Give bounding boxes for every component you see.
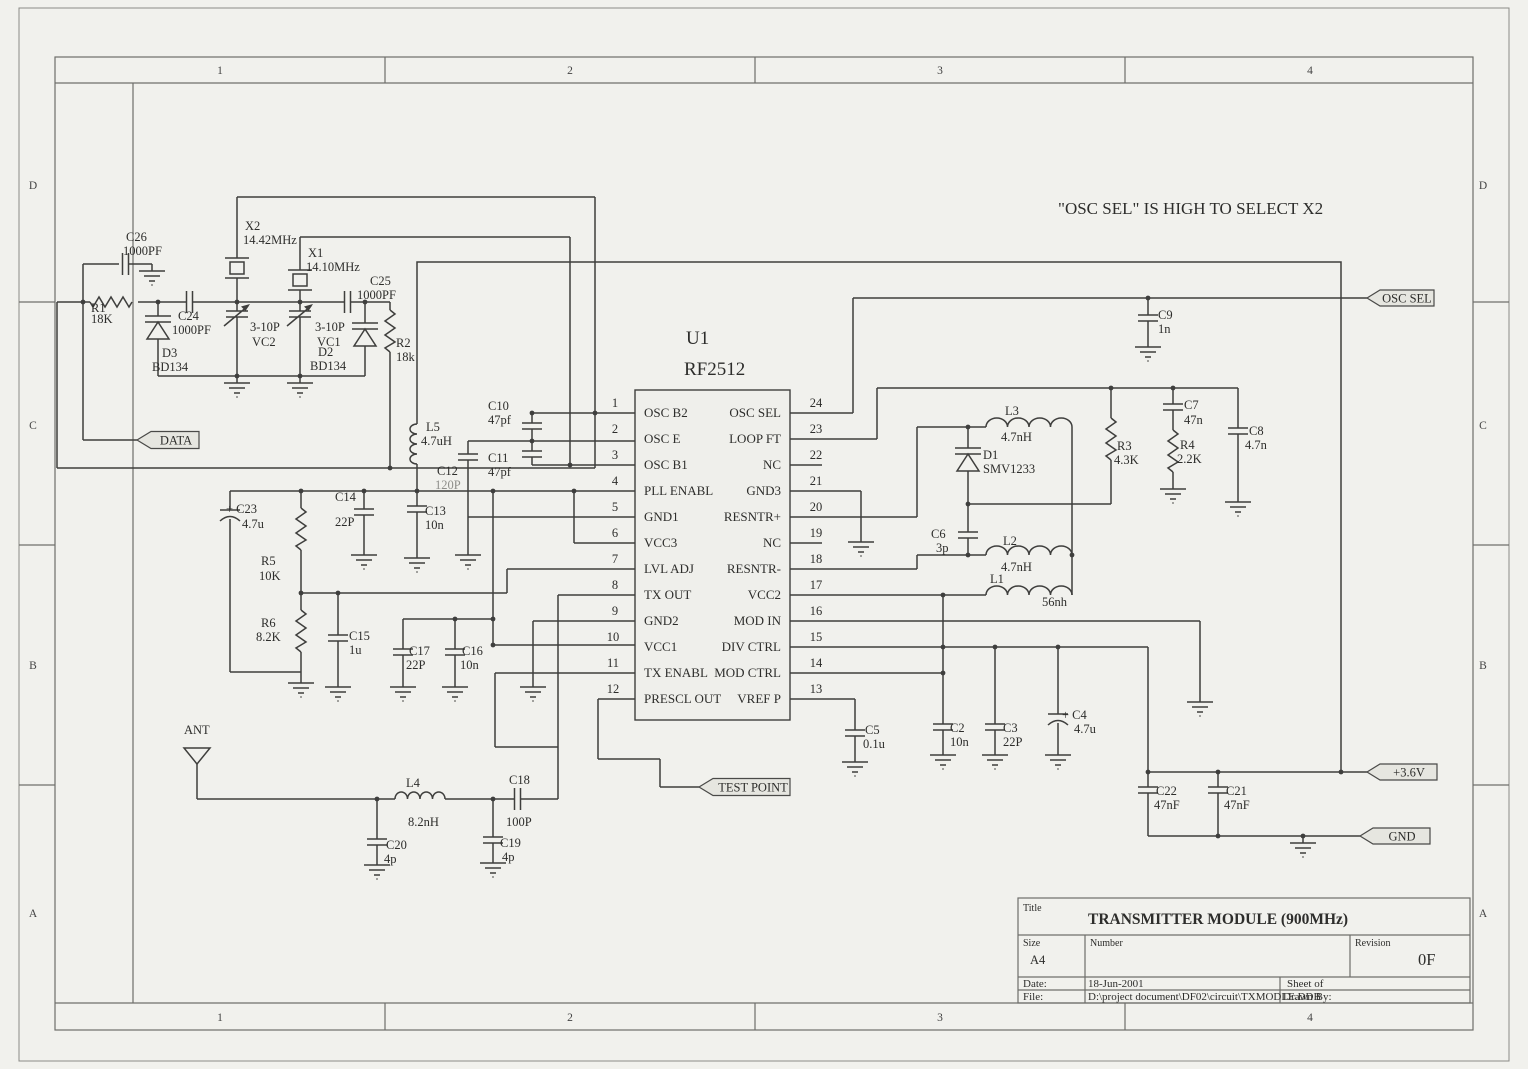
pin-name: GND2	[644, 613, 679, 628]
pin-name: RESNTR-	[727, 561, 781, 576]
pin-number: 1	[612, 396, 618, 410]
label-c20-val: 4p	[384, 852, 397, 866]
v36-flag-label: +3.6V	[1393, 766, 1425, 780]
capacitor-c25	[345, 291, 351, 313]
label-r4-val: 2.2K	[1177, 452, 1202, 466]
capacitor-c7	[1163, 404, 1183, 410]
capacitor-c13	[407, 506, 427, 512]
ground-rail	[1290, 836, 1316, 857]
label-c9-ref: C9	[1158, 308, 1173, 322]
label-d2-ref: D2	[318, 345, 333, 359]
label-c6-ref: C6	[931, 527, 946, 541]
pin-name: TX ENABL	[644, 665, 708, 680]
zone-row-a-left: A	[29, 908, 38, 920]
ground-c5	[842, 755, 868, 776]
pin-name: GND1	[644, 509, 679, 524]
label-c25-ref: C25	[370, 274, 391, 288]
label-l5-ref: L5	[426, 420, 440, 434]
capacitor-c5	[845, 730, 865, 736]
pin-number: 22	[810, 448, 823, 462]
label-c15-ref: C15	[349, 629, 370, 643]
label-c2-val: 10n	[950, 735, 970, 749]
label-c23-val: 4.7u	[242, 517, 265, 531]
ic-part: RF2512	[684, 359, 745, 380]
label-r6-val: 8.2K	[256, 630, 281, 644]
inductor-l2	[986, 546, 1072, 555]
zone-col-1-bottom: 1	[217, 1012, 223, 1024]
pin-name: NC	[763, 457, 781, 472]
label-d1-val: SMV1233	[983, 462, 1035, 476]
label-c5-val: 0.1u	[863, 737, 886, 751]
label-c10-val: 47pf	[488, 413, 512, 427]
pin-name: PRESCL OUT	[644, 691, 721, 706]
ground-c9	[1135, 340, 1161, 361]
capacitor-c15	[328, 635, 348, 641]
pin-number: 10	[607, 630, 620, 644]
label-c22-ref: C22	[1156, 784, 1177, 798]
size-label: Size	[1023, 938, 1041, 949]
pin-name: RESNTR+	[724, 509, 781, 524]
file-label: File:	[1023, 991, 1043, 1003]
revision-label: Revision	[1355, 938, 1391, 949]
zone-row-a-right: A	[1479, 908, 1488, 920]
pin-name: DIV CTRL	[722, 639, 781, 654]
inductor-l4	[395, 792, 445, 799]
label-c4-val: 4.7u	[1074, 722, 1097, 736]
label-l1-ref: L1	[990, 572, 1004, 586]
label-c16-val: 10n	[460, 658, 480, 672]
pin-number: 21	[810, 474, 823, 488]
label-l3-val: 4.7nH	[1001, 430, 1032, 444]
ground-r6	[288, 676, 314, 697]
ground-gnd3	[848, 535, 874, 556]
label-r5-val: 10K	[259, 569, 281, 583]
pin-name: OSC B1	[644, 457, 688, 472]
label-c21-val: 47nF	[1224, 798, 1250, 812]
varactor-d3	[145, 316, 171, 339]
ground-vc2	[224, 376, 250, 397]
label-c2-ref: C2	[950, 721, 965, 735]
capacitor-c18	[515, 788, 521, 810]
zone-col-2-bottom: 2	[567, 1012, 573, 1024]
pin-number: 6	[612, 526, 618, 540]
label-vc2-ref: VC2	[252, 335, 276, 349]
title-label: Title	[1023, 903, 1042, 914]
label-c12-ref: C12	[437, 464, 458, 478]
ground-gnd2	[520, 680, 546, 701]
schematic-canvas: 1 2 3 4 1 2 3 4 D C B A D C B A	[0, 0, 1528, 1069]
label-x2-val: 14.42MHz	[243, 233, 297, 247]
label-d1-ref: D1	[983, 448, 998, 462]
label-l4-val: 8.2nH	[408, 815, 439, 829]
zone-row-b-right: B	[1479, 660, 1487, 672]
zone-col-3-bottom: 3	[937, 1012, 943, 1024]
label-c23-ref: + C23	[226, 502, 257, 516]
label-c7-val: 47n	[1184, 413, 1204, 427]
label-c9-val: 1n	[1158, 322, 1171, 336]
label-r3-val: 4.3K	[1114, 453, 1139, 467]
label-c3-val: 22P	[1003, 735, 1023, 749]
pin-number: 3	[612, 448, 618, 462]
ground-r4	[1160, 482, 1186, 503]
label-c21-ref: C21	[1226, 784, 1247, 798]
pin-name: TX OUT	[644, 587, 691, 602]
label-c24-ref: C24	[178, 309, 200, 323]
capacitor-c11	[522, 451, 542, 457]
zone-row-d-right: D	[1479, 180, 1487, 192]
label-l3-ref: L3	[1005, 404, 1019, 418]
pin-name: LOOP FT	[729, 431, 781, 446]
label-c3-ref: C3	[1003, 721, 1018, 735]
ground-c13	[404, 551, 430, 572]
pin-name: OSC SEL	[729, 405, 781, 420]
label-c19-ref: C19	[500, 836, 521, 850]
label-c13-val: 10n	[425, 518, 445, 532]
label-l1-val: 56nh	[1042, 595, 1068, 609]
pin-number: 16	[810, 604, 823, 618]
resistor-r2	[385, 310, 395, 352]
pin-name: LVL ADJ	[644, 561, 694, 576]
label-c11-val: 47pf	[488, 465, 512, 479]
inductor-l1	[986, 586, 1072, 595]
capacitor-c10	[522, 423, 542, 429]
ic-u1: U1 RF2512 1 2 3 4 5 6 7 8 9 10 11 12 OSC…	[607, 328, 823, 720]
ground-c3	[982, 748, 1008, 769]
zone-row-d-left: D	[29, 180, 37, 192]
ground-c8	[1225, 495, 1251, 516]
label-c26-val: 1000PF	[123, 244, 162, 258]
label-l2-ref: L2	[1003, 534, 1017, 548]
sheet-of-label: Sheet of	[1287, 978, 1324, 990]
label-c8-ref: C8	[1249, 424, 1264, 438]
zone-row-c-left: C	[29, 420, 37, 432]
label-r2-ref: R2	[396, 336, 411, 350]
label-l4-ref: L4	[406, 776, 421, 790]
data-flag-label: DATA	[160, 434, 192, 448]
label-c19-val: 4p	[502, 850, 515, 864]
label-x1-val: 14.10MHz	[306, 260, 360, 274]
label-c25-val: 1000PF	[357, 288, 396, 302]
ground-vc1	[287, 376, 313, 397]
label-ant: ANT	[184, 723, 210, 737]
label-c15-val: 1u	[349, 643, 362, 657]
schematic-sheet: 1 2 3 4 1 2 3 4 D C B A D C B A	[0, 0, 1528, 1069]
pin-number: 2	[612, 422, 618, 436]
zone-col-2-top: 2	[567, 65, 573, 77]
pin-number: 5	[612, 500, 618, 514]
ground-c14	[351, 548, 377, 569]
varactor-d2	[352, 323, 378, 346]
ground-c2	[930, 748, 956, 769]
zone-col-4-bottom: 4	[1307, 1012, 1313, 1024]
ic-ref: U1	[686, 328, 709, 349]
label-c20-ref: C20	[386, 838, 407, 852]
ground-c4	[1045, 748, 1071, 769]
crystal-x2	[225, 258, 249, 278]
zone-row-c-right: C	[1479, 420, 1487, 432]
pin-number: 12	[607, 682, 620, 696]
label-c14-val: 22P	[335, 515, 355, 529]
label-c24-val: 1000PF	[172, 323, 211, 337]
label-c11-ref: C11	[488, 451, 508, 465]
title-block: Title TRANSMITTER MODULE (900MHz) Size A…	[1018, 898, 1470, 1003]
drawn-by-label: Drawn By:	[1283, 991, 1332, 1003]
ground-c17	[390, 680, 416, 701]
pin-number: 4	[612, 474, 619, 488]
pin-number: 20	[810, 500, 823, 514]
pin-number: 7	[612, 552, 618, 566]
pin-name: MOD CTRL	[714, 665, 781, 680]
ground-modin	[1187, 695, 1213, 716]
label-d2-val: BD134	[310, 359, 347, 373]
sheet-title: TRANSMITTER MODULE (900MHz)	[1088, 911, 1348, 928]
pin-name: OSC B2	[644, 405, 688, 420]
zone-col-3-top: 3	[937, 65, 943, 77]
label-r1-val: 18K	[91, 312, 113, 326]
capacitor-c21	[1208, 787, 1228, 793]
label-c18-ref: C18	[509, 773, 530, 787]
label-r5-ref: R5	[261, 554, 276, 568]
label-c13-ref: C13	[425, 504, 446, 518]
pin-number: 13	[810, 682, 823, 696]
pin-number: 15	[810, 630, 823, 644]
label-d3-ref: D3	[162, 346, 177, 360]
pin-number: 9	[612, 604, 618, 618]
pin-name: PLL ENABL	[644, 483, 713, 498]
pin-name: VCC2	[748, 587, 781, 602]
label-c17-val: 22P	[406, 658, 426, 672]
ground-c26	[139, 264, 165, 285]
resistor-r6	[296, 610, 306, 652]
inductor-l5	[410, 424, 417, 464]
label-vc1-val: 3-10P	[315, 320, 345, 334]
pin-number: 11	[607, 656, 619, 670]
osc-sel-flag-label: OSC SEL	[1382, 292, 1432, 306]
capacitor-c6	[958, 532, 978, 538]
pin-number: 18	[810, 552, 823, 566]
resistor-r5	[296, 508, 306, 550]
label-l5-val: 4.7uH	[421, 434, 452, 448]
capacitor-c20	[367, 839, 387, 845]
label-c4-ref: + C4	[1062, 708, 1088, 722]
pin-name: MOD IN	[734, 613, 782, 628]
label-r2-val: 18k	[396, 350, 416, 364]
ground-c12	[455, 548, 481, 569]
pin-name: GND3	[746, 483, 781, 498]
zone-row-b-left: B	[29, 660, 37, 672]
pin-number: 24	[810, 396, 823, 410]
pin-number: 23	[810, 422, 823, 436]
capacitor-c14	[354, 509, 374, 515]
capacitor-c3	[985, 724, 1005, 730]
label-vc2-val: 3-10P	[250, 320, 280, 334]
zone-col-4-top: 4	[1307, 65, 1313, 77]
label-r3-ref: R3	[1117, 439, 1132, 453]
pin-name: VCC1	[644, 639, 677, 654]
osc-sel-note: "OSC SEL" IS HIGH TO SELECT X2	[1058, 199, 1323, 218]
label-c7-ref: C7	[1184, 398, 1199, 412]
label-c5-ref: C5	[865, 723, 880, 737]
capacitor-c9	[1138, 315, 1158, 321]
capacitor-c8	[1228, 428, 1248, 434]
capacitor-c12	[458, 454, 478, 460]
revision-value: 0F	[1418, 950, 1435, 969]
pin-name: VREF P	[737, 691, 781, 706]
pin-name: OSC E	[644, 431, 681, 446]
size-value: A4	[1030, 953, 1046, 967]
number-label: Number	[1090, 938, 1123, 949]
pin-number: 14	[810, 656, 823, 670]
gnd-flag-label: GND	[1388, 830, 1415, 844]
label-c14-ref: C14	[335, 490, 357, 504]
label-l2-val: 4.7nH	[1001, 560, 1032, 574]
zone-col-1-top: 1	[217, 65, 223, 77]
label-c26-ref: C26	[126, 230, 147, 244]
capacitor-c22	[1138, 787, 1158, 793]
label-c8-val: 4.7n	[1245, 438, 1268, 452]
label-r4-ref: R4	[1180, 438, 1195, 452]
pin-number: 17	[810, 578, 823, 592]
ground-c16	[442, 680, 468, 701]
pin-name: NC	[763, 535, 781, 550]
inductor-l3	[986, 418, 1072, 427]
test-point-flag-label: TEST POINT	[718, 781, 788, 795]
label-d3-val: BD134	[152, 360, 189, 374]
date-label: Date:	[1023, 978, 1047, 990]
pin-number: 19	[810, 526, 823, 540]
label-c17-ref: C17	[409, 644, 430, 658]
antenna-symbol	[184, 748, 210, 764]
label-x1-ref: X1	[308, 246, 323, 260]
pin-number: 8	[612, 578, 618, 592]
ground-c15	[325, 680, 351, 701]
label-c18-val: 100P	[506, 815, 532, 829]
label-r6-ref: R6	[261, 616, 276, 630]
label-x2-ref: X2	[245, 219, 260, 233]
label-c16-ref: C16	[462, 644, 483, 658]
varactor-d1	[955, 448, 981, 471]
pin-name: VCC3	[644, 535, 677, 550]
label-c6-val: 3p	[936, 541, 949, 555]
label-c10-ref: C10	[488, 399, 509, 413]
label-c12-val: 120P	[435, 478, 461, 492]
label-c22-val: 47nF	[1154, 798, 1180, 812]
date-value: 18-Jun-2001	[1088, 978, 1144, 990]
